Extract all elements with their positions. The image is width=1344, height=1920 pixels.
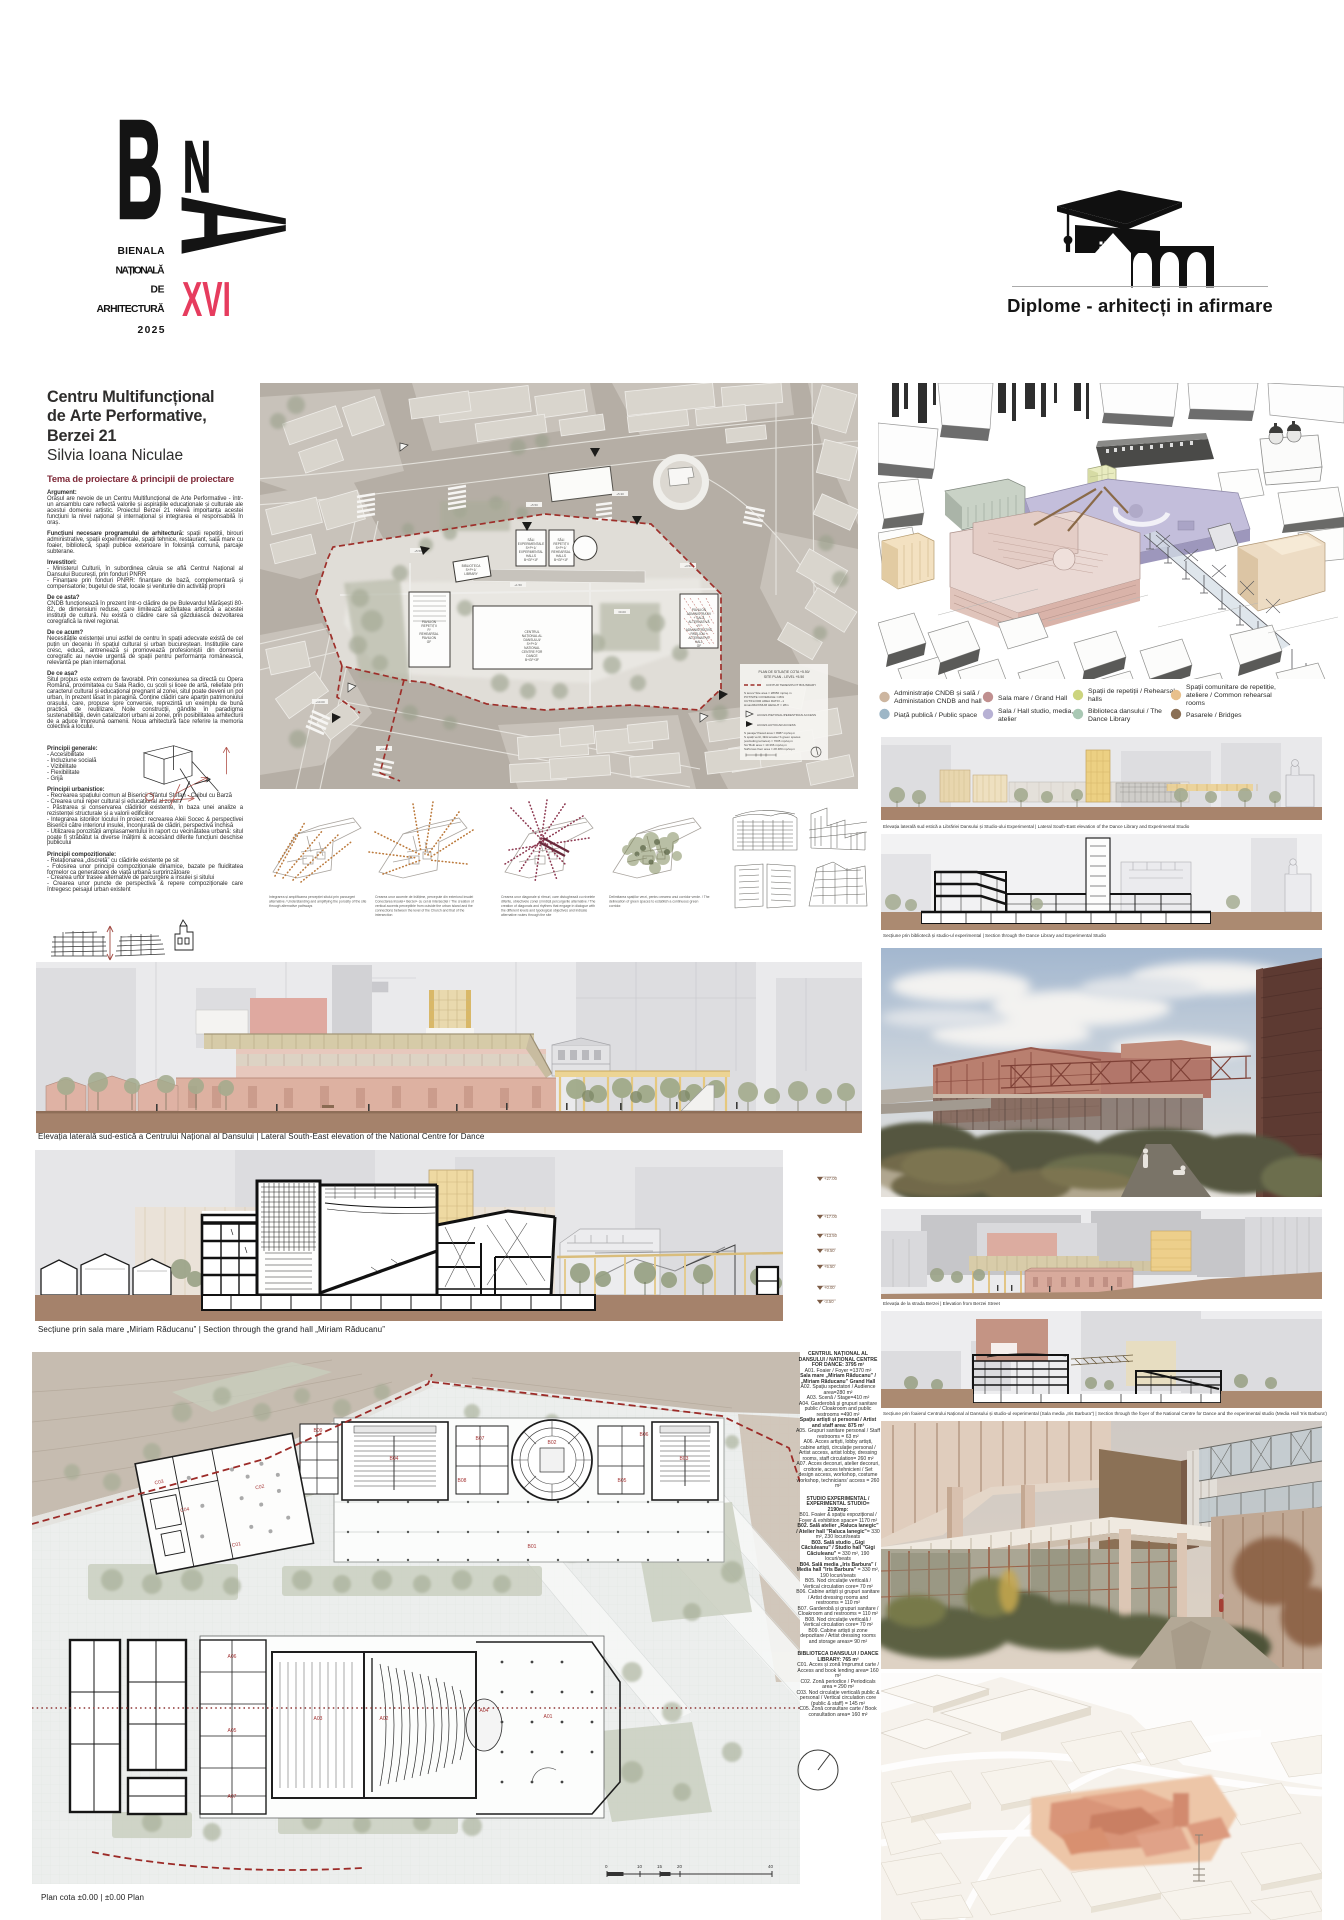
svg-text:Conectarea Insulei+ Berzei+ cu: Conectarea Insulei+ Berzei+ cu cel al in… (375, 900, 474, 904)
svg-text:Diplome - arhitecți in afirmar: Diplome - arhitecți in afirmare (1007, 295, 1273, 316)
svg-text:±0.00: ±0.00 (618, 610, 626, 614)
svg-text:B03: B03 (680, 1456, 689, 1462)
svg-text:vertical accents perceptible f: vertical accents perceptible from outsid… (375, 904, 473, 908)
svg-text:Crearea unor accente de înălți: Crearea unor accente de înălțime, percep… (375, 895, 473, 899)
svg-text:alternative / Understanding an: alternative / Understanding and amplifyi… (269, 900, 367, 904)
svg-text:B+GF+1F: B+GF+1F (554, 558, 568, 562)
svg-text:through alternative pathways: through alternative pathways (269, 904, 313, 908)
svg-text:Biblioteca dansului / The: Biblioteca dansului / The (1088, 708, 1162, 715)
svg-text:Spații de repetiții / Rehearsa: Spații de repetiții / Rehearsal (1088, 688, 1175, 695)
svg-text:Dance Library: Dance Library (1088, 716, 1131, 723)
svg-text:A01: A01 (544, 1714, 553, 1720)
svg-text:Hmax/MAXIMUM HEIGHT = 28m: Hmax/MAXIMUM HEIGHT = 28m (744, 703, 789, 707)
svg-text:+1.50: +1.50 (514, 583, 522, 587)
svg-text:Piață publică / Public space: Piață publică / Public space (894, 712, 977, 719)
svg-text:XVI: XVI (182, 273, 231, 327)
svg-text:+10.00: +10.00 (315, 700, 325, 704)
svg-text:+5.30: +5.30 (616, 492, 624, 496)
svg-text:A03: A03 (314, 1716, 323, 1722)
svg-text:B: B (116, 90, 163, 248)
svg-text:B06: B06 (640, 1432, 649, 1438)
svg-text:CONTUR TEREN/PLOT BOUNDARY: CONTUR TEREN/PLOT BOUNDARY (766, 683, 816, 687)
svg-text:Pasarele / Bridges: Pasarele / Bridges (1186, 712, 1242, 719)
svg-text:ARHITECTURĂ: ARHITECTURĂ (97, 302, 166, 315)
svg-text:alternative routes through the: alternative routes through the site (501, 913, 551, 917)
svg-text:atelier: atelier (998, 716, 1017, 723)
svg-text:+9.50: +9.50 (824, 1248, 835, 1253)
svg-text:B04: B04 (390, 1456, 399, 1462)
svg-text:LIBRARY: LIBRARY (464, 572, 478, 576)
svg-text:Sd/Gross floor area = 28 480: Sd/Gross floor area = 28 480 mp/sq.m (744, 747, 795, 751)
svg-text:Spații comunitare de repetiție: Spații comunitare de repetiție, (1186, 684, 1276, 691)
svg-text:2025: 2025 (138, 325, 165, 336)
svg-text:B+GF+1F: B+GF+1F (524, 558, 538, 562)
svg-text:B+GF+3F: B+GF+3F (525, 658, 539, 662)
svg-text:B07: B07 (476, 1436, 485, 1442)
svg-text:rooms: rooms (1186, 700, 1205, 707)
svg-text:+10.00: +10.00 (379, 747, 389, 751)
svg-text:the different levels and typol: the different levels and typological obj… (501, 909, 587, 913)
svg-text:+17.00: +17.00 (824, 1214, 838, 1219)
svg-text:B05: B05 (618, 1478, 627, 1484)
svg-text:NAȚIONALĂ: NAȚIONALĂ (116, 263, 166, 276)
svg-text:ACCES PIETONAL/PEDESTRIAN ACCE: ACCES PIETONAL/PEDESTRIAN ACCESS (757, 713, 816, 717)
svg-text:diferite, obiectivele zonei și: diferite, obiectivele zonei și indică pe… (501, 900, 595, 904)
svg-text:Crearea unor diagonale și ritm: Crearea unor diagonale și ritmuri, care … (501, 895, 595, 899)
svg-text:+13.50: +13.50 (824, 1233, 838, 1238)
svg-text:A06: A06 (228, 1654, 237, 1660)
svg-text:A04: A04 (480, 1708, 489, 1714)
svg-text:BIENALA: BIENALA (118, 246, 166, 257)
svg-text:SITE PLAN - LEVEL +5.50: SITE PLAN - LEVEL +5.50 (764, 675, 804, 679)
svg-text:Administrație CNDB și sală /: Administrație CNDB și sală / (894, 690, 979, 697)
svg-text:B02: B02 (548, 1440, 557, 1446)
svg-text:GF: GF (697, 644, 701, 648)
svg-text:creation of diagonals and rhyt: creation of diagonals and rhythms that e… (501, 904, 595, 908)
svg-text:+0.00: +0.00 (824, 1285, 835, 1290)
svg-text:Sala mare / Grand Hall: Sala mare / Grand Hall (998, 695, 1068, 702)
svg-text:10: 10 (637, 1864, 643, 1869)
svg-text:N: N (183, 127, 211, 208)
svg-text:+27.00: +27.00 (824, 1176, 838, 1181)
svg-text:intersection: intersection (375, 913, 392, 917)
svg-text:GF: GF (427, 640, 431, 644)
svg-text:corridor.: corridor. (609, 904, 621, 908)
svg-text:Sala / Hall studio, media,: Sala / Hall studio, media, (998, 708, 1073, 715)
svg-text:B08: B08 (458, 1478, 467, 1484)
svg-text:connections between the level: connections between the level of the Chu… (375, 909, 464, 913)
svg-text:A02: A02 (380, 1716, 389, 1722)
svg-text:-3.50: -3.50 (824, 1299, 834, 1304)
svg-text:+5.50: +5.50 (530, 503, 538, 507)
svg-text:Delimitarea spațiilor verzi, p: Delimitarea spațiilor verzi, pentru crea… (609, 895, 710, 899)
svg-text:+5.50: +5.50 (824, 1264, 835, 1269)
svg-text:A05: A05 (228, 1728, 237, 1734)
svg-text:40: 40 (768, 1864, 774, 1869)
svg-text:ateliere / Common rehearsal: ateliere / Common rehearsal (1186, 692, 1272, 699)
svg-text:Integrarea și amplificarea per: Integrarea și amplificarea percepției si… (269, 895, 355, 899)
svg-text:A07: A07 (228, 1794, 237, 1800)
svg-text:ACCES AUTOCAR ACCESS: ACCES AUTOCAR ACCESS (757, 723, 796, 727)
svg-text:halls: halls (1088, 696, 1103, 703)
svg-text:delineation of green spaces to: delineation of green spaces to establish… (609, 900, 698, 904)
svg-text:DE: DE (151, 285, 165, 296)
svg-text:Administation CNDB and hall: Administation CNDB and hall (894, 698, 982, 705)
svg-text:20: 20 (677, 1864, 683, 1869)
svg-text:+5.50: +5.50 (414, 549, 422, 553)
svg-text:15: 15 (657, 1864, 663, 1869)
svg-text:PLAN DE SITUAȚIE COTA +5.50/: PLAN DE SITUAȚIE COTA +5.50/ (758, 670, 809, 674)
svg-text:B01: B01 (528, 1544, 537, 1550)
